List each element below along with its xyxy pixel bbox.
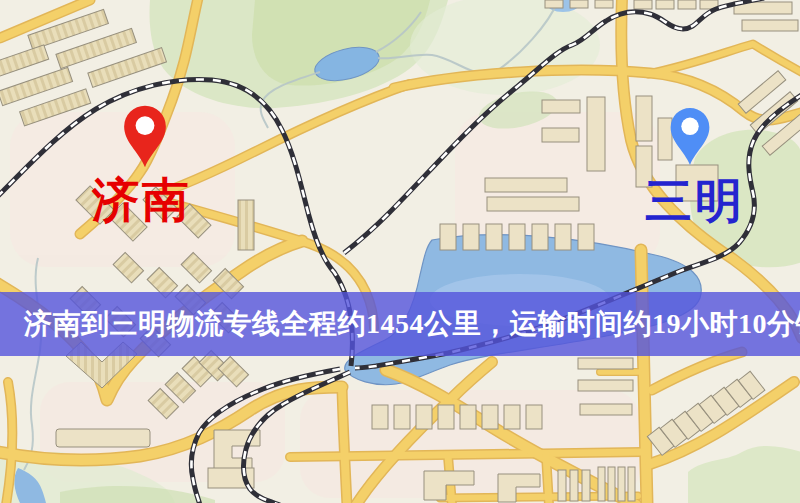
destination-label: 三明: [645, 178, 745, 225]
destination-pin-icon[interactable]: [667, 105, 713, 167]
map-canvas: [0, 0, 800, 503]
origin-pin-icon[interactable]: [121, 102, 169, 170]
origin-label: 济南: [92, 177, 192, 224]
map-image: 济南 三明 济南到三明物流专线全程约1454公里，运输时间约19小时10分钟.: [0, 0, 800, 503]
route-info-banner: 济南到三明物流专线全程约1454公里，运输时间约19小时10分钟.: [0, 292, 800, 356]
route-info-text: 济南到三明物流专线全程约1454公里，运输时间约19小时10分钟.: [24, 305, 800, 343]
